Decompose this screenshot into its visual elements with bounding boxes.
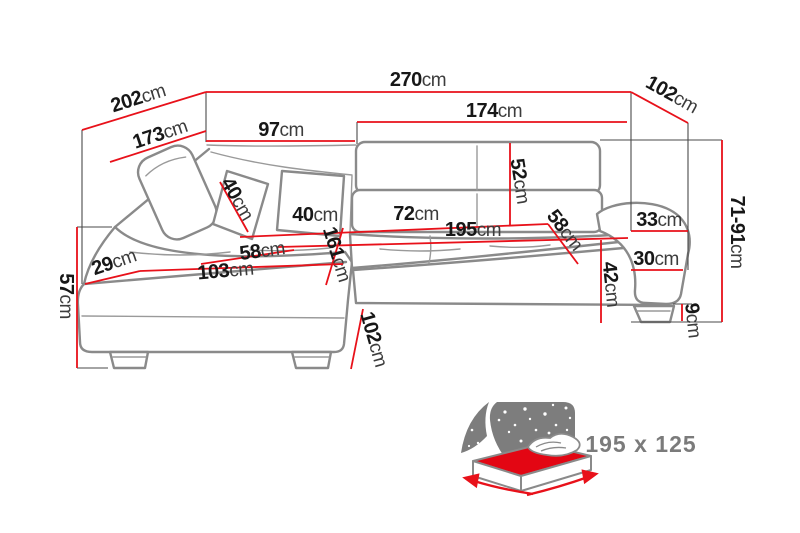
bed-icon xyxy=(465,434,596,495)
dimension-33cm: 33cm xyxy=(631,209,688,231)
dimension-174cm: 174cm xyxy=(357,100,627,122)
diagram-canvas: 270cm 202cm 173cm 97cm 174cm 102cm 52cm … xyxy=(0,0,800,533)
night-sky-swoosh xyxy=(461,402,489,453)
sleeping-function-icon: 195 x 125 xyxy=(461,402,697,495)
dimension-97cm: 97cm xyxy=(206,119,355,141)
dim-label-leg-height: 9cm xyxy=(680,302,706,339)
dim-label-armrest-side: 30cm xyxy=(633,248,679,270)
dim-label-back-pillow: 40cm xyxy=(292,204,338,226)
dim-label-left-diagonal: 202cm xyxy=(108,79,168,117)
backrest-top xyxy=(356,142,600,194)
dim-label-chaise-back-top: 97cm xyxy=(258,119,304,141)
dim-label-armrest-top: 33cm xyxy=(636,209,682,231)
sofa-dimension-diagram: 270cm 202cm 173cm 97cm 174cm 102cm 52cm … xyxy=(0,0,800,533)
dim-label-height-range: 71-91cm xyxy=(726,196,748,269)
headrest xyxy=(133,141,222,245)
dimension-9cm: 9cm xyxy=(680,302,706,339)
dim-label-sleeping-length: 195cm xyxy=(445,219,501,241)
dimension-72cm: 72cm xyxy=(393,203,439,225)
dim-label-corner-diagonal: 102cm xyxy=(642,72,702,118)
sleeping-area-size: 195 x 125 xyxy=(585,431,696,457)
dim-label-total-width: 270cm xyxy=(390,69,446,91)
dimension-30cm: 30cm xyxy=(631,248,683,270)
dimension-71-91cm: 71-91cm xyxy=(722,140,748,322)
dimension-202cm: 202cm xyxy=(82,79,206,130)
dim-label-overall-height: 57cm xyxy=(55,273,77,319)
dimension-102cm-top: 102cm xyxy=(631,72,702,123)
dimension-57cm: 57cm xyxy=(55,227,77,368)
dim-label-seat-segment: 72cm xyxy=(393,203,439,225)
dimension-270cm: 270cm xyxy=(206,69,631,92)
dimension-102cm-bottom: 102cm xyxy=(351,309,392,369)
dim-label-chaise-depth: 102cm xyxy=(355,309,392,369)
dim-label-backrest-width: 174cm xyxy=(466,100,522,122)
